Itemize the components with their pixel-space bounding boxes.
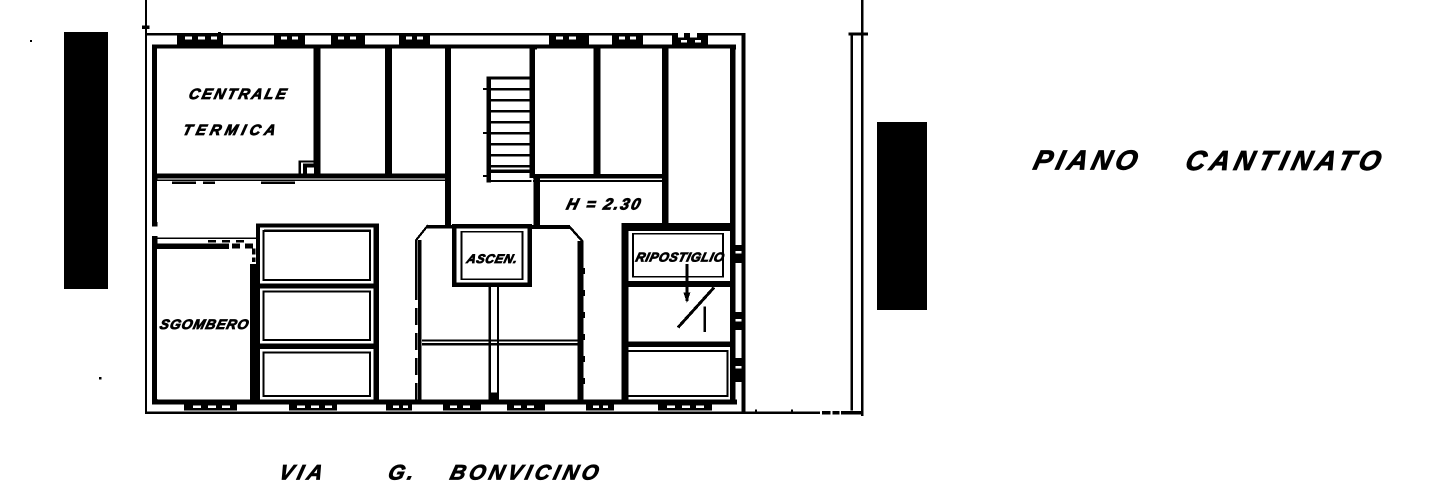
svg-text:H = 2.30: H = 2.30: [565, 196, 645, 214]
svg-text:BONVICINO: BONVICINO: [448, 461, 605, 485]
svg-text:G.: G.: [386, 461, 420, 485]
svg-text:VIA: VIA: [277, 461, 330, 485]
svg-text:CANTINATO: CANTINATO: [1183, 145, 1389, 176]
svg-text:TERMICA: TERMICA: [181, 122, 281, 139]
svg-text:ASCEN.: ASCEN.: [464, 252, 519, 266]
svg-text:RIPOSTIGLIO: RIPOSTIGLIO: [634, 250, 726, 265]
svg-text:PIANO: PIANO: [1031, 145, 1146, 176]
svg-text:SGOMBERO: SGOMBERO: [158, 316, 251, 332]
svg-text:CENTRALE: CENTRALE: [187, 86, 290, 103]
